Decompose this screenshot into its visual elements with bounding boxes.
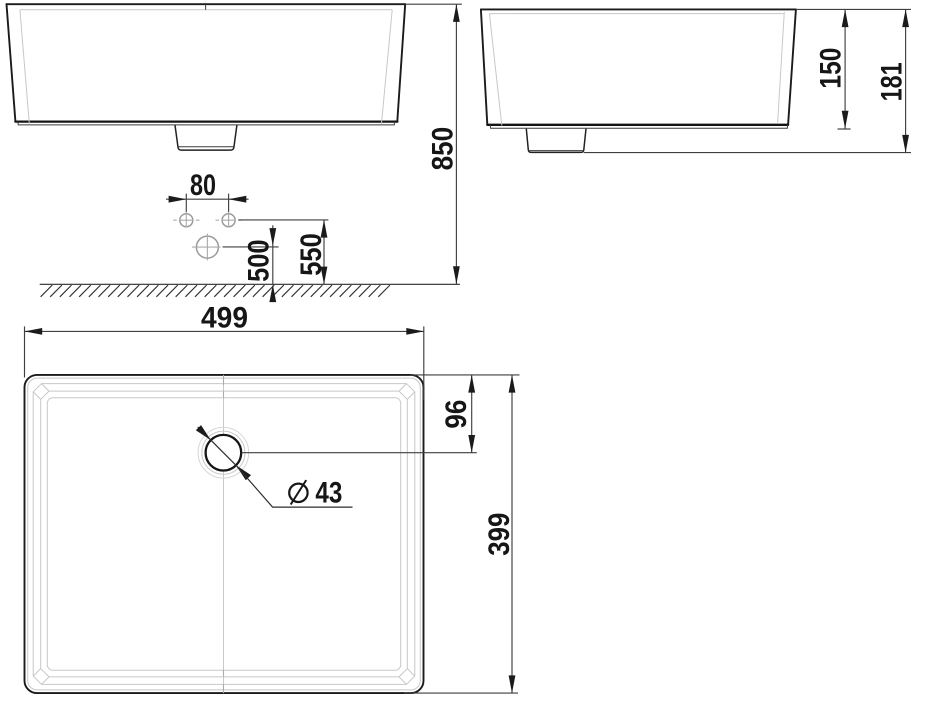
- svg-text:80: 80: [190, 169, 216, 202]
- svg-text:43: 43: [315, 477, 342, 510]
- svg-text:96: 96: [440, 400, 473, 429]
- svg-text:150: 150: [815, 48, 848, 89]
- svg-text:550: 550: [295, 233, 328, 276]
- svg-text:399: 399: [483, 513, 516, 556]
- svg-text:499: 499: [201, 302, 248, 335]
- svg-text:500: 500: [243, 240, 276, 282]
- svg-text:181: 181: [875, 62, 908, 101]
- svg-text:850: 850: [426, 127, 459, 171]
